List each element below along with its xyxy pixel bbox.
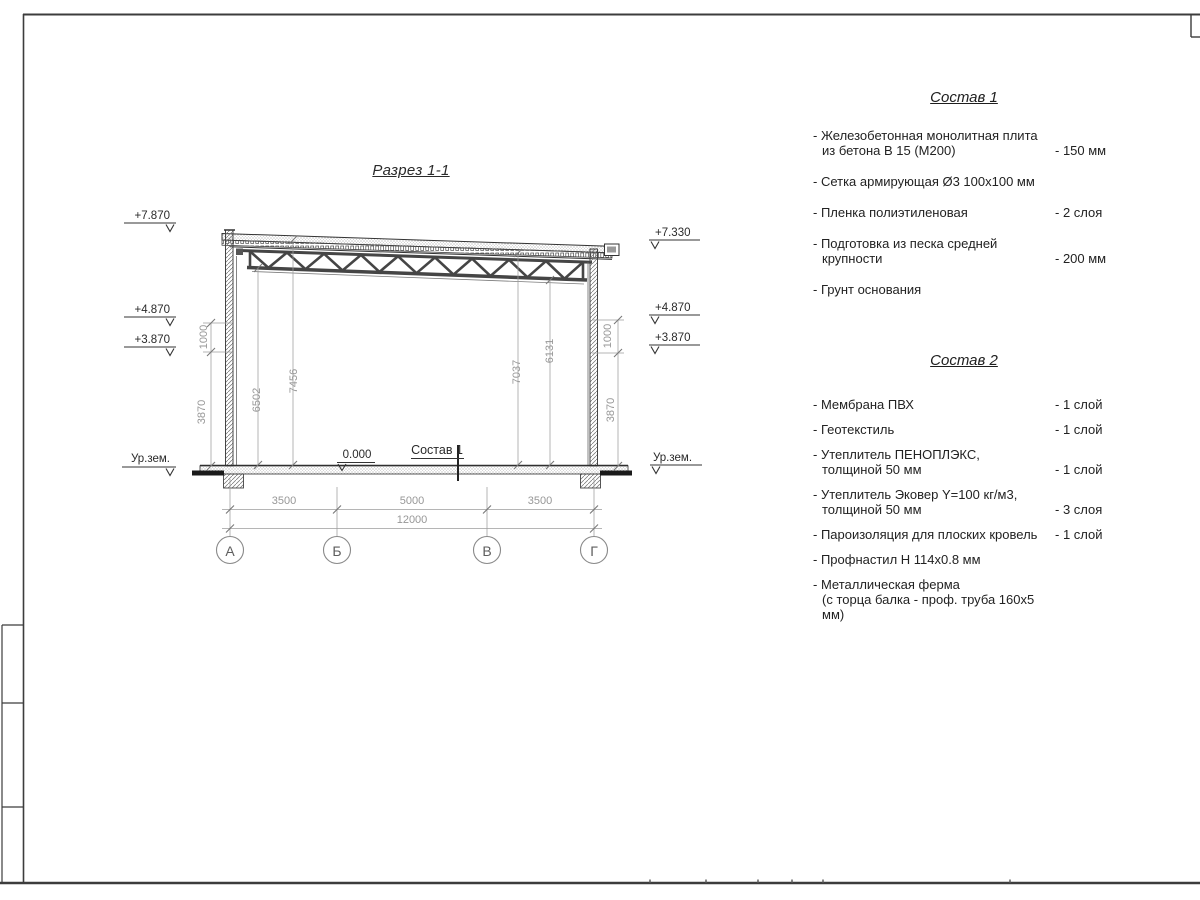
dim-6502: 6502 <box>251 378 263 422</box>
composition-list-2: Состав 2 - Мембрана ПВХ - 1 слой - Геоте… <box>813 352 1115 632</box>
elevation-mark-right-ground: Ур.зем. <box>653 452 692 464</box>
dim-span-2: 5000 <box>387 495 437 507</box>
axis-bubble-b: Б <box>323 543 351 559</box>
dim-span-3: 3500 <box>515 495 565 507</box>
list-item: - Грунт основания <box>813 282 1115 297</box>
dim-7037: 7037 <box>511 350 523 394</box>
drawing-sheet: Разрез 1-1 +7.870 +4.870 +3.870 Ур.зем. … <box>0 0 1200 900</box>
axis-circles <box>217 537 608 564</box>
dim-right-1000: 1000 <box>602 314 614 358</box>
list-item: - Железобетонная монолитная плита из бет… <box>813 128 1115 158</box>
list-item: - Профнастил Н 114х0.8 мм <box>813 552 1115 567</box>
list-item: - Металлическая ферма (с торца балка - п… <box>813 577 1115 622</box>
composition-1-heading: Состав 1 <box>813 89 1115 106</box>
floor-composition-callout: Состав 1 <box>410 443 464 457</box>
dim-7456: 7456 <box>288 359 300 403</box>
axis-bubble-g: Г <box>580 543 608 559</box>
list-item: - Мембрана ПВХ - 1 слой <box>813 397 1115 412</box>
elevation-mark-right-1: +7.330 <box>655 227 691 239</box>
elevation-mark-right-2: +4.870 <box>655 302 691 314</box>
axis-bubble-v: В <box>473 543 501 559</box>
dim-left-3870: 3870 <box>196 390 208 434</box>
elevation-mark-left-1: +7.870 <box>124 210 170 222</box>
axis-bubble-a: А <box>216 543 244 559</box>
list-item: - Утеплитель ПЕНОПЛЭКС, толщиной 50 мм -… <box>813 447 1115 477</box>
elevation-mark-right-3: +3.870 <box>655 332 691 344</box>
dimension-lines <box>203 236 624 537</box>
list-item: - Геотекстиль - 1 слой <box>813 422 1115 437</box>
elevation-mark-left-ground: Ур.зем. <box>124 453 170 465</box>
composition-2-heading: Состав 2 <box>813 352 1115 369</box>
list-item: - Пленка полиэтиленовая - 2 слоя <box>813 205 1115 220</box>
dim-left-1000: 1000 <box>198 315 210 359</box>
list-item: - Подготовка из песка средней крупности … <box>813 236 1115 266</box>
dim-total: 12000 <box>384 514 440 526</box>
dim-6131: 6131 <box>544 329 556 373</box>
elevation-mark-left-3: +3.870 <box>124 334 170 346</box>
dim-right-3870: 3870 <box>605 388 617 432</box>
section-title: Разрез 1-1 <box>336 162 486 179</box>
list-item: - Утеплитель Эковер Y=100 кг/м3, толщино… <box>813 487 1115 517</box>
list-item: - Пароизоляция для плоских кровель - 1 с… <box>813 527 1115 542</box>
list-item: - Сетка армирующая Ø3 100х100 мм <box>813 174 1115 189</box>
zero-level-mark: 0.000 <box>338 449 376 461</box>
composition-list-1: Состав 1 - Железобетонная монолитная пли… <box>813 89 1115 313</box>
dim-span-1: 3500 <box>259 495 309 507</box>
elevation-mark-left-2: +4.870 <box>124 304 170 316</box>
